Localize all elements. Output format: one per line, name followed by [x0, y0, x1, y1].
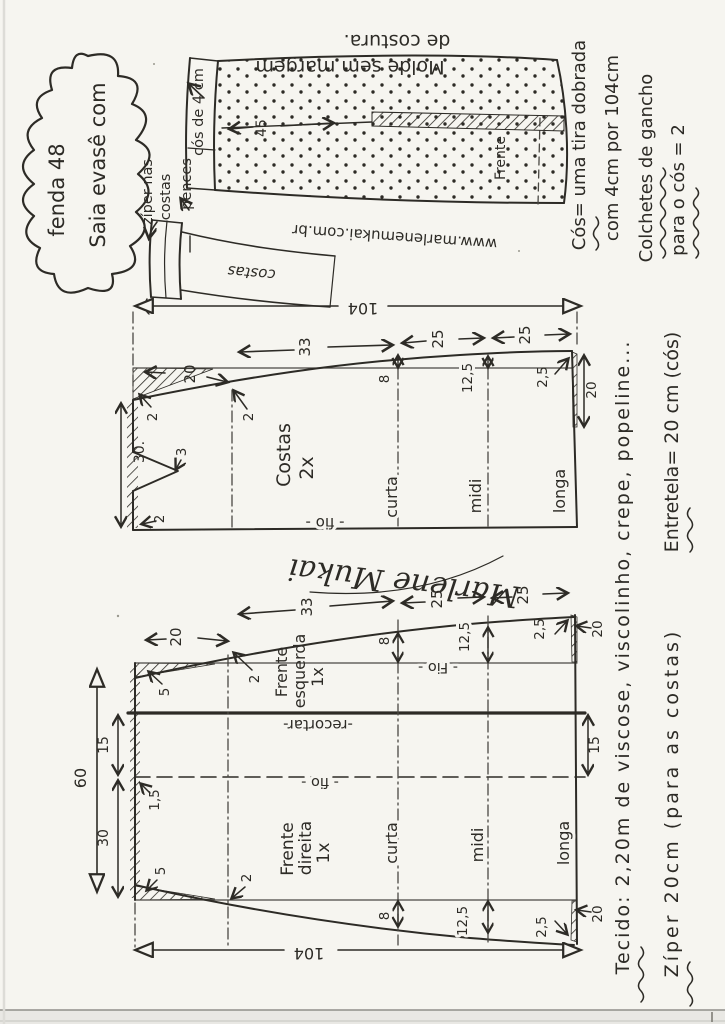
- frente-seg-25b: 25: [514, 585, 532, 604]
- frente-d5-bottom: 5: [153, 867, 169, 876]
- frente-fio-top: - Fio -: [418, 659, 458, 675]
- sewing-pattern-scan: Saia evasê com fenda 48 de costura. Mold…: [0, 0, 725, 1024]
- frente-longa: longa: [554, 821, 573, 865]
- note-cos-line2: com 4cm por 104cm: [602, 55, 623, 241]
- label-ziper-line2: costas: [158, 174, 174, 221]
- frente-dir-line1: Frente: [278, 822, 298, 876]
- costas-seg-25b: 25: [516, 325, 534, 344]
- title-line1: Saia evasê com: [86, 82, 110, 247]
- note-cos-line1: Cós= uma tira dobrada: [569, 40, 590, 250]
- molde-note-line1: Molde sem margem: [255, 56, 444, 78]
- costas-d25: 2,5: [535, 366, 551, 387]
- costas-seg-25a: 25: [429, 329, 447, 348]
- frente-w30: 30: [96, 829, 112, 847]
- costas-curta: curta: [382, 476, 401, 518]
- frente-midi: midi: [468, 828, 487, 863]
- frente-esq-line2: esquerda: [290, 634, 309, 709]
- frente-d25-top: 2,5: [532, 618, 548, 639]
- costas-len-104: 104: [348, 299, 379, 318]
- frente-seg-33: 33: [298, 597, 316, 616]
- frente-d25-bottom: 2,5: [534, 916, 550, 937]
- frente-slit-bottom-20: 20: [590, 905, 606, 922]
- costas-d8: 8: [377, 375, 393, 384]
- frente-d5-top: 5: [157, 688, 173, 697]
- frente-dir-line2: direita: [296, 821, 316, 875]
- label-frente-sketch: Frente: [493, 136, 509, 180]
- costas-d2-waist: 2: [145, 413, 161, 422]
- frente-esq-line3: 1x: [308, 667, 327, 687]
- costas-midi: midi: [466, 479, 485, 514]
- frente-d125-top: 12,5: [457, 622, 473, 652]
- note-ziper: Zíper 20cm (para as costas): [661, 629, 683, 978]
- costas-name: Costas: [273, 423, 295, 487]
- costas-d2-curve: 2: [241, 413, 257, 422]
- frente-len-104: 104: [294, 944, 325, 963]
- label-pences: pences: [179, 158, 195, 210]
- molde-note-line2: de costura.: [344, 30, 451, 52]
- frente-curta: curta: [382, 822, 401, 864]
- note-colchetes-line2: para o cós = 2: [668, 124, 689, 256]
- frente-w60: 60: [71, 768, 90, 788]
- costas-qty: 2x: [296, 456, 318, 479]
- frente-fio-bottom: - fio -: [301, 774, 339, 790]
- frente-dir-line3: 1x: [314, 843, 334, 864]
- note-tecido: Tecido: 2,20m de viscose, viscolinho, cr…: [612, 340, 634, 976]
- frente-seg-20: 20: [167, 627, 185, 646]
- frente-d125-bottom: 12,5: [455, 906, 471, 936]
- frente-d8-top: 8: [377, 637, 393, 646]
- frente-d2-bottom: 2: [239, 874, 255, 883]
- frente-w15-right: 15: [587, 736, 603, 754]
- label-cos-4cm: cós de 4 cm: [191, 68, 207, 156]
- dim-45: 45: [254, 119, 270, 137]
- frente-d8-bottom: 8: [377, 912, 393, 921]
- costas-seg-33: 33: [296, 337, 314, 356]
- frente-esq-line1: Frente: [272, 647, 291, 697]
- costas-d3-dart: 3: [174, 448, 190, 457]
- label-ziper-line1: zíper nas: [140, 159, 156, 225]
- frente-seg-25a: 25: [428, 589, 446, 608]
- costas-d125: 12,5: [460, 363, 476, 393]
- frente-d2-top: 2: [247, 675, 263, 684]
- frente-d15-seam: 1,5: [147, 789, 163, 810]
- frente-w15-left: 15: [96, 736, 112, 754]
- costas-seg-20: 20: [181, 364, 199, 383]
- note-entretela: Entretela= 20 cm (cós): [661, 332, 683, 553]
- costas-fio: - fio -: [306, 514, 345, 532]
- costas-longa: longa: [550, 469, 569, 513]
- note-colchetes-line1: Colchetes de gancho: [636, 74, 657, 263]
- costas-d2-bottom: 2: [152, 515, 168, 524]
- costas-w30: 30.: [132, 441, 148, 463]
- frente-slit-top-20: 20: [590, 620, 606, 637]
- frente-recortar: -recortar-: [283, 716, 353, 734]
- costas-slit-20: 20: [584, 381, 600, 398]
- title-line2: fenda 48: [45, 143, 69, 236]
